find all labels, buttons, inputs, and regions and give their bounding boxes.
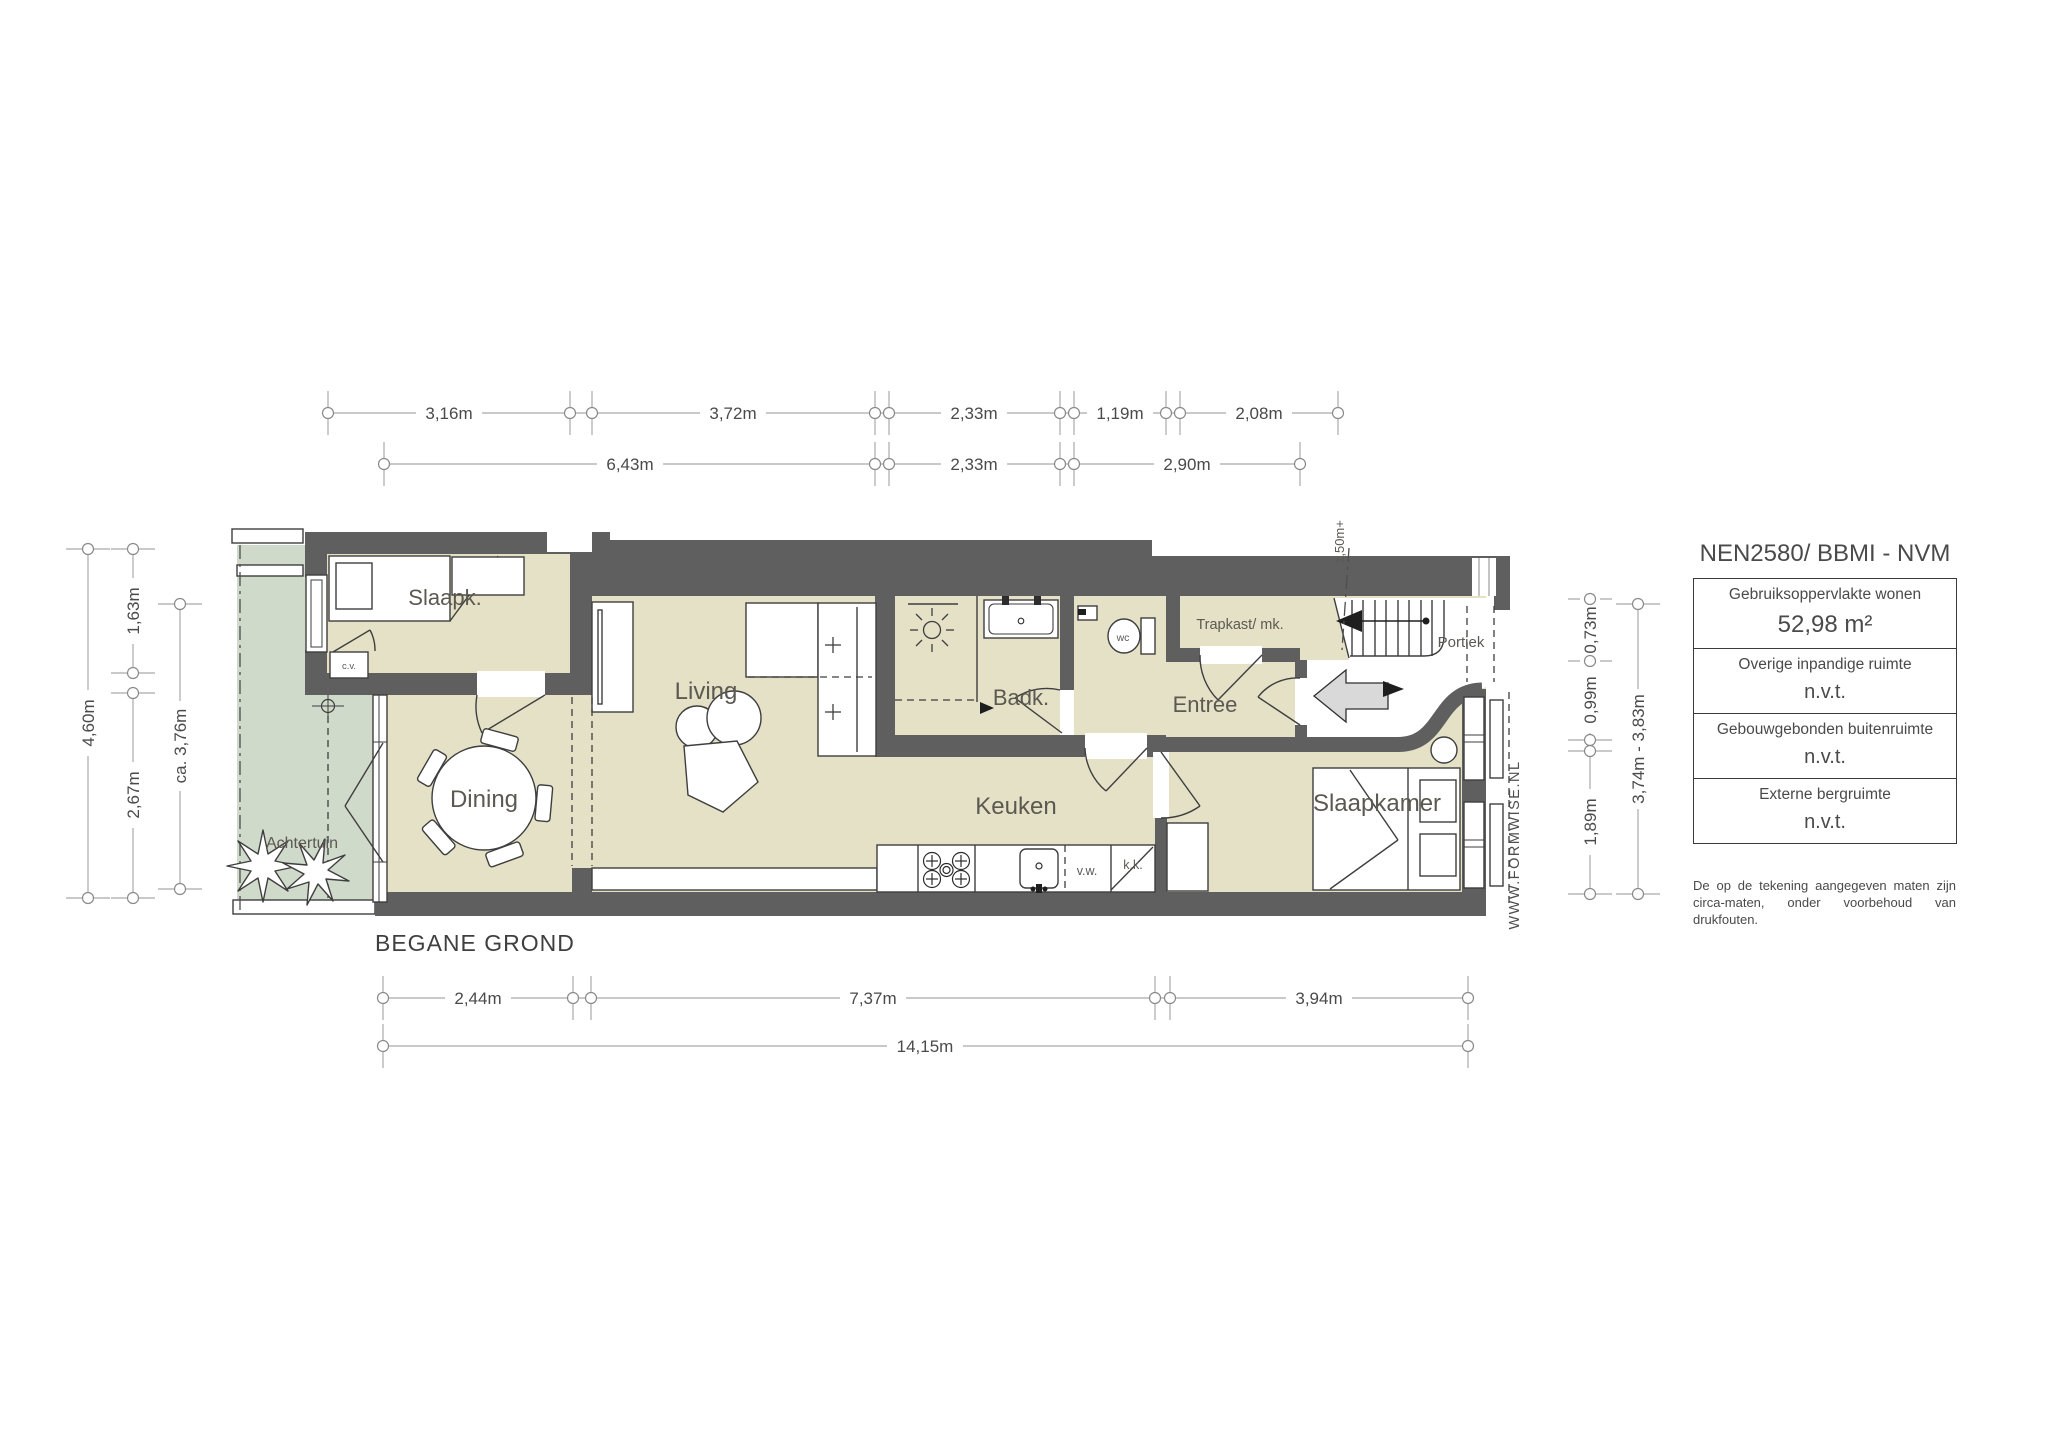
room-label-keuken: Keuken xyxy=(975,793,1056,820)
table-row: Gebouwgebonden buitenruimte n.v.t. xyxy=(1694,713,1956,778)
table-row: Gebruiksoppervlakte wonen 52,98 m² xyxy=(1694,579,1956,648)
svg-text:3,16m: 3,16m xyxy=(425,404,472,423)
room-label-living: Living xyxy=(675,678,738,705)
row-value: n.v.t. xyxy=(1696,746,1954,769)
svg-text:6,43m: 6,43m xyxy=(606,455,653,474)
room-label-slaapkamer: Slaapkamer xyxy=(1313,790,1441,817)
column-icon xyxy=(1431,737,1457,763)
svg-text:2,33m: 2,33m xyxy=(950,404,997,423)
table-row: Overige inpandige ruimte n.v.t. xyxy=(1694,648,1956,713)
room-label-trapkast: Trapkast/ mk. xyxy=(1196,617,1283,633)
label-cv: c.v. xyxy=(342,661,356,672)
watermark-text: WWW.FORMWISE.NL xyxy=(1507,760,1523,929)
row-value: 52,98 m² xyxy=(1696,611,1954,639)
bench xyxy=(592,868,877,890)
svg-text:1,19m: 1,19m xyxy=(1096,404,1143,423)
dimensions-right: 0,73m 0,99m 1,89m 3,74m - 3,83m xyxy=(1568,594,1660,900)
svg-text:2,33m: 2,33m xyxy=(950,455,997,474)
room-label-badk: Badk. xyxy=(993,685,1049,710)
room-label-portiek: Portiek xyxy=(1438,634,1485,651)
sink-icon xyxy=(1020,849,1058,893)
svg-text:7,37m: 7,37m xyxy=(849,989,896,1008)
toilet-icon xyxy=(1108,618,1155,654)
room-label-wc: wc xyxy=(1116,632,1130,644)
svg-text:3,74m - 3,83m: 3,74m - 3,83m xyxy=(1629,694,1648,804)
row-value: n.v.t. xyxy=(1696,681,1954,704)
room-label-slaapk: Slaapk. xyxy=(408,585,481,610)
washbasin-icon xyxy=(984,596,1058,638)
svg-text:2,90m: 2,90m xyxy=(1163,455,1210,474)
row-label: Gebruiksoppervlakte wonen xyxy=(1696,586,1954,604)
floorplan-page: Slaapk. Living Dining Achtertuin Badk. w… xyxy=(0,0,2048,1448)
svg-text:ca. 3,76m: ca. 3,76m xyxy=(171,709,190,784)
svg-text:1,63m: 1,63m xyxy=(124,587,143,634)
label-vw: v.w. xyxy=(1077,864,1098,878)
nen-surface-table: Gebruiksoppervlakte wonen 52,98 m² Overi… xyxy=(1693,578,1957,844)
dimensions-left: 4,60m 1,63m 2,67m ca. 3,76m xyxy=(66,544,202,904)
svg-text:3,72m: 3,72m xyxy=(709,404,756,423)
svg-text:2,67m: 2,67m xyxy=(124,771,143,818)
closet xyxy=(1167,823,1208,891)
label-height-note: 1,50m+ xyxy=(1332,520,1347,564)
svg-text:14,15m: 14,15m xyxy=(897,1037,954,1056)
svg-text:0,73m: 0,73m xyxy=(1581,606,1600,653)
svg-text:0,99m: 0,99m xyxy=(1581,676,1600,723)
double-bed xyxy=(1313,768,1460,890)
row-value: n.v.t. xyxy=(1696,811,1954,834)
svg-text:4,60m: 4,60m xyxy=(79,699,98,746)
wardrobe xyxy=(592,602,633,712)
row-label: Overige inpandige ruimte xyxy=(1696,656,1954,674)
svg-text:2,08m: 2,08m xyxy=(1235,404,1282,423)
dimensions-top: 3,16m 3,72m 2,33m 1,19m 2,08m 6,43m 2,33… xyxy=(323,391,1344,486)
kitchen-counter xyxy=(877,845,1155,893)
row-label: Gebouwgebonden buitenruimte xyxy=(1696,721,1954,739)
table-row: Externe bergruimte n.v.t. xyxy=(1694,778,1956,843)
label-kk: k.k. xyxy=(1123,858,1142,872)
corner-sink-icon xyxy=(1078,606,1097,620)
floor-title: BEGANE GROND xyxy=(375,930,575,957)
dimensions-bottom: 2,44m 7,37m 3,94m 14,15m xyxy=(378,976,1474,1068)
disclaimer-text: De op de tekening aangegeven maten zijn … xyxy=(1693,878,1956,929)
room-label-achtertuin: Achtertuin xyxy=(266,835,338,852)
nen-panel-title: NEN2580/ BBMI - NVM xyxy=(1680,540,1970,568)
row-label: Externe bergruimte xyxy=(1696,786,1954,804)
room-label-entree: Entree xyxy=(1173,692,1238,717)
svg-text:2,44m: 2,44m xyxy=(454,989,501,1008)
svg-text:1,89m: 1,89m xyxy=(1581,798,1600,845)
room-label-dining: Dining xyxy=(450,786,518,813)
svg-text:3,94m: 3,94m xyxy=(1295,989,1342,1008)
